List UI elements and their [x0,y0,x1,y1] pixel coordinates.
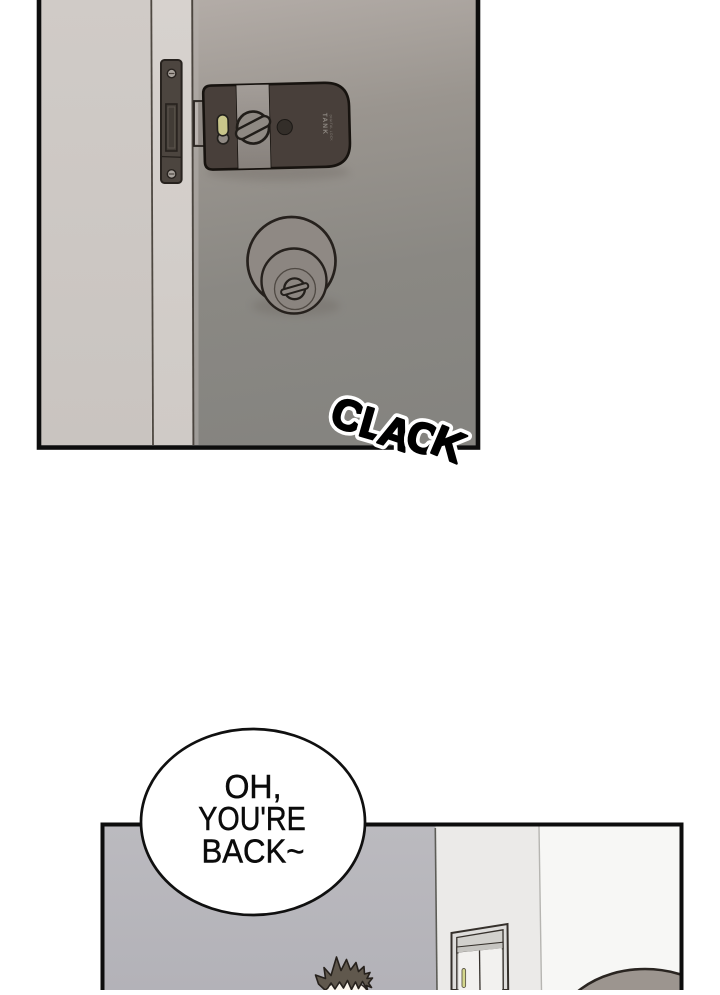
svg-text:YOU'RE: YOU'RE [198,800,306,837]
svg-text:BACK~: BACK~ [202,833,305,870]
svg-text:TANK: TANK [321,113,329,136]
svg-text:DIGITAL LOCK: DIGITAL LOCK [329,115,334,142]
